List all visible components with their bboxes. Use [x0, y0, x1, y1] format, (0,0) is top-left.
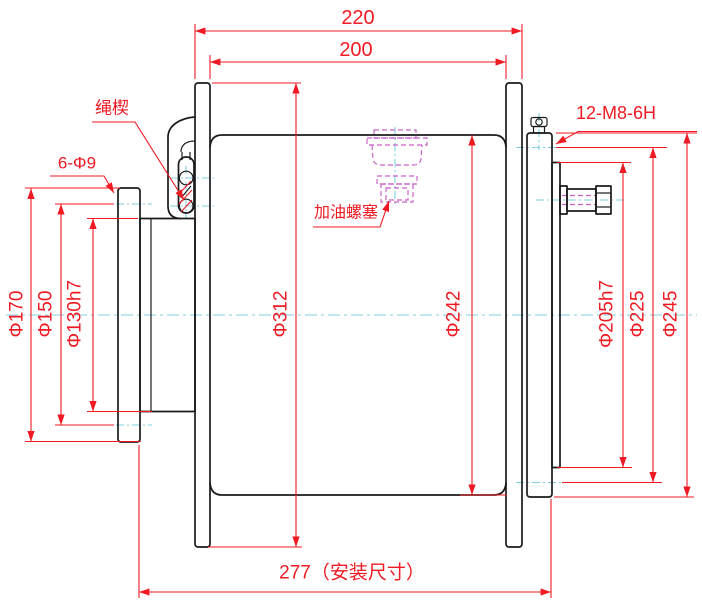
rope-wedge-boss [168, 117, 195, 219]
note-rope-wedge: 绳楔 [92, 99, 192, 213]
rope-wedge-inner-curve [181, 141, 195, 152]
dim-label-200: 200 [339, 39, 372, 61]
drum-barrel-top [210, 135, 506, 147]
label-thread-spec: 12-M8-6H [576, 103, 656, 123]
dimension-inner-width: 200 [210, 39, 506, 79]
label-rope-wedge: 绳楔 [95, 99, 129, 118]
dim-label-220: 220 [341, 7, 374, 29]
dim-label-phi170: Φ170 [7, 291, 28, 338]
dim-label-phi130h7: Φ130h7 [65, 280, 86, 348]
dim-label-phi225: Φ225 [628, 291, 649, 338]
dim-label-phi245: Φ245 [661, 291, 682, 338]
centerlines [6, 113, 697, 483]
note-oil-plug: 加油螺塞 [313, 201, 389, 227]
label-oil-plug: 加油螺塞 [314, 204, 378, 222]
note-bolt-holes: 6-Φ9 [50, 154, 114, 194]
dimension-install-width: 277（安装尺寸） [139, 445, 551, 598]
drum-barrel-bottom [210, 483, 506, 495]
dimensions: 220 200 Φ312 Φ242 Φ170 [7, 7, 698, 598]
note-thread-spec: 12-M8-6H [556, 103, 697, 144]
dim-label-phi312: Φ312 [271, 291, 292, 338]
oil-plug-lower-hidden [377, 176, 417, 202]
dim-label-277: 277（安装尺寸） [279, 562, 425, 584]
dim-label-phi205h7: Φ205h7 [597, 280, 618, 348]
drawing-canvas: 220 200 Φ312 Φ242 Φ170 [0, 0, 702, 608]
dim-label-phi242: Φ242 [444, 291, 465, 338]
technical-drawing: 220 200 Φ312 Φ242 Φ170 [0, 0, 702, 608]
dim-label-phi150: Φ150 [36, 291, 57, 338]
label-bolt-holes: 6-Φ9 [58, 154, 96, 173]
